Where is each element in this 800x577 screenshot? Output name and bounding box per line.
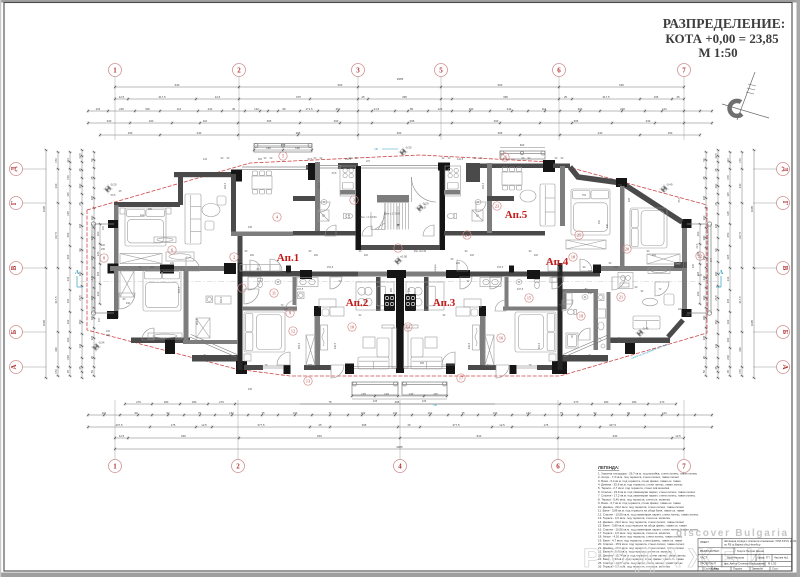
svg-text:25: 25 — [676, 95, 680, 99]
svg-text:330: 330 — [107, 119, 112, 123]
svg-text:1095: 1095 — [750, 205, 754, 212]
svg-text:200: 200 — [78, 183, 82, 188]
svg-text:Д: Д — [781, 167, 789, 172]
svg-text:фаза: ТП: фаза: ТП — [758, 556, 770, 560]
svg-text:21,5: 21,5 — [374, 107, 380, 111]
svg-text:270: 270 — [219, 400, 224, 404]
svg-text:101: 101 — [662, 411, 667, 415]
svg-text:А: А — [10, 364, 18, 369]
svg-text:12,5: 12,5 — [119, 95, 125, 99]
svg-text:150: 150 — [598, 219, 601, 224]
svg-text:8: 8 — [103, 256, 105, 261]
svg-text:133: 133 — [493, 411, 498, 415]
svg-text:365: 365 — [726, 254, 730, 259]
svg-text:365,5: 365,5 — [618, 336, 621, 343]
svg-text:6: 6 — [556, 463, 560, 471]
svg-text:229: 229 — [119, 107, 124, 111]
svg-text:-0,40: -0,40 — [666, 183, 673, 187]
svg-text:300: 300 — [578, 107, 583, 111]
svg-text:45: 45 — [66, 370, 70, 374]
svg-text:-0,24: -0,24 — [98, 341, 105, 345]
svg-text:328: 328 — [628, 197, 631, 202]
svg-text:20: 20 — [625, 247, 629, 252]
svg-text:365: 365 — [267, 119, 272, 123]
svg-text:240: 240 — [606, 223, 609, 228]
svg-text:Подпис: Подпис — [733, 567, 743, 571]
svg-text:270: 270 — [136, 400, 141, 404]
svg-text:176: 176 — [738, 158, 742, 163]
svg-text:762: 762 — [618, 184, 623, 187]
svg-text:131: 131 — [714, 343, 718, 348]
svg-text:240: 240 — [598, 131, 603, 135]
svg-text:115: 115 — [66, 298, 70, 303]
svg-text:810: 810 — [477, 434, 482, 438]
svg-text:16кл. х 17,5/30: 16кл. х 17,5/30 — [359, 216, 377, 219]
svg-text:242,5: 242,5 — [468, 342, 471, 349]
svg-text:Съст.: Съст. — [772, 567, 779, 571]
svg-text:опора: опора — [434, 264, 437, 272]
svg-text:50: 50 — [90, 370, 94, 374]
svg-text:Б: Б — [10, 329, 18, 334]
svg-text:317,5: 317,5 — [603, 95, 610, 99]
svg-text:95,5: 95,5 — [678, 197, 681, 202]
svg-text:11: 11 — [272, 291, 276, 296]
svg-text:-0,20: -0,20 — [110, 183, 117, 187]
svg-text:240: 240 — [126, 302, 131, 305]
svg-text:180: 180 — [604, 400, 609, 404]
svg-text:377,5: 377,5 — [453, 423, 460, 427]
svg-text:45: 45 — [78, 366, 82, 370]
svg-text:discover Bulgaria: discover Bulgaria — [676, 528, 789, 539]
svg-text:45: 45 — [714, 366, 718, 370]
svg-text:25: 25 — [577, 233, 581, 238]
svg-text:495: 495 — [395, 400, 400, 404]
svg-text:Д: Д — [10, 166, 18, 171]
svg-text:Георги Петров Жеков: Георги Петров Жеков — [737, 549, 764, 553]
svg-text:100: 100 — [678, 308, 683, 311]
svg-text:115: 115 — [98, 317, 101, 322]
svg-text:100: 100 — [106, 330, 111, 333]
svg-text:50,5: 50,5 — [111, 194, 116, 197]
svg-text:33,5: 33,5 — [332, 172, 337, 175]
svg-text:25: 25 — [702, 176, 706, 180]
svg-text:1Б: 1Б — [374, 147, 378, 151]
svg-text:180: 180 — [106, 334, 111, 337]
svg-text:365: 365 — [308, 364, 313, 367]
svg-text:Архитектурна: Архитектурна — [727, 556, 745, 560]
svg-text:101: 101 — [662, 107, 667, 111]
svg-text:100: 100 — [101, 244, 106, 247]
svg-text:362,5: 362,5 — [196, 318, 199, 325]
svg-text:600: 600 — [498, 83, 503, 87]
svg-text:197: 197 — [366, 160, 371, 163]
svg-text:240: 240 — [261, 272, 266, 275]
svg-text:75: 75 — [461, 411, 465, 415]
svg-text:-0,45: -0,45 — [642, 327, 649, 331]
svg-text:РАЗПРЕДЕЛЕНИЕ:: РАЗПРЕДЕЛЕНИЕ: — [663, 16, 786, 31]
svg-text:262,5: 262,5 — [298, 342, 301, 349]
svg-text:155: 155 — [654, 95, 659, 99]
svg-text:230: 230 — [588, 292, 593, 295]
svg-text:В: В — [10, 265, 18, 270]
svg-text:7: 7 — [682, 463, 686, 471]
svg-text:97,5: 97,5 — [424, 203, 427, 208]
svg-text:242: 242 — [208, 107, 213, 111]
svg-text:270: 270 — [660, 400, 665, 404]
svg-text:237,5: 237,5 — [297, 288, 304, 291]
svg-text:457: 457 — [710, 257, 713, 262]
svg-text:49: 49 — [232, 107, 236, 111]
svg-text:М 1:50: М 1:50 — [768, 562, 777, 566]
svg-text:100: 100 — [90, 215, 94, 220]
svg-text:365: 365 — [296, 131, 301, 135]
svg-text:42,5: 42,5 — [78, 153, 82, 159]
svg-text:350: 350 — [78, 319, 82, 324]
svg-text:15: 15 — [527, 296, 531, 301]
svg-text:2905: 2905 — [396, 445, 403, 449]
svg-text:437,5: 437,5 — [609, 423, 616, 427]
svg-text:810: 810 — [317, 434, 322, 438]
svg-text:270: 270 — [574, 400, 579, 404]
svg-text:240: 240 — [702, 275, 706, 280]
svg-text:Вид: Вид — [714, 567, 719, 571]
svg-text:115: 115 — [78, 223, 82, 228]
svg-text:75: 75 — [198, 411, 202, 415]
svg-text:302,5: 302,5 — [538, 342, 541, 349]
svg-text:317,5: 317,5 — [54, 232, 58, 239]
svg-text:4: 4 — [398, 463, 402, 471]
svg-text:200: 200 — [614, 266, 619, 269]
svg-text:176: 176 — [54, 158, 58, 163]
svg-text:190: 190 — [149, 119, 154, 123]
svg-text:А: А — [75, 270, 80, 276]
svg-text:200: 200 — [470, 254, 475, 257]
svg-text:133: 133 — [293, 411, 298, 415]
svg-text:395: 395 — [503, 95, 508, 99]
svg-text:260: 260 — [334, 119, 339, 123]
svg-text:12,5: 12,5 — [499, 423, 505, 427]
svg-text:242,5: 242,5 — [334, 342, 337, 349]
svg-text:122: 122 — [438, 107, 443, 111]
svg-text:1095: 1095 — [42, 319, 46, 326]
svg-text:Ап.1: Ап.1 — [277, 252, 300, 264]
svg-text:КОТА +0,00 = 23,85: КОТА +0,00 = 23,85 — [665, 31, 779, 46]
svg-text:330: 330 — [738, 183, 742, 188]
svg-text:133: 133 — [393, 411, 398, 415]
svg-text:300: 300 — [520, 143, 525, 147]
svg-text:113: 113 — [66, 158, 70, 163]
svg-text:3: 3 — [353, 198, 355, 203]
svg-text:245: 245 — [248, 226, 253, 229]
svg-text:75: 75 — [328, 400, 332, 404]
svg-text:180: 180 — [702, 315, 706, 320]
svg-text:17: 17 — [459, 376, 463, 381]
svg-text:Замерил: Замерил — [752, 567, 763, 571]
svg-text:75: 75 — [560, 411, 564, 415]
svg-text:630: 630 — [613, 434, 618, 438]
svg-text:162: 162 — [361, 411, 366, 415]
svg-text:90: 90 — [78, 248, 82, 252]
svg-text:630: 630 — [181, 434, 186, 438]
svg-text:200: 200 — [284, 308, 289, 311]
svg-text:180: 180 — [686, 314, 691, 317]
svg-text:16кл х 17,5/30: 16кл х 17,5/30 — [384, 212, 401, 215]
svg-text:115: 115 — [726, 298, 730, 303]
svg-text:12,5: 12,5 — [215, 95, 221, 99]
svg-text:120: 120 — [96, 251, 100, 256]
svg-text:242: 242 — [507, 107, 512, 111]
svg-text:25: 25 — [714, 168, 718, 172]
svg-text:162: 162 — [726, 319, 730, 324]
svg-text:Ап.4: Ап.4 — [546, 256, 569, 268]
svg-text:142,5: 142,5 — [345, 158, 352, 161]
svg-text:2бр.х10:40: 2бр.х10:40 — [414, 250, 427, 253]
svg-text:160: 160 — [469, 107, 474, 111]
svg-text:245: 245 — [348, 213, 351, 218]
svg-text:152,5: 152,5 — [497, 266, 504, 269]
svg-text:120: 120 — [384, 392, 389, 396]
svg-text:120: 120 — [696, 291, 700, 296]
svg-text:115: 115 — [714, 223, 718, 228]
svg-text:330: 330 — [54, 183, 58, 188]
svg-text:330: 330 — [646, 119, 651, 123]
svg-text:по РЗ гр.Варна общ.Несебър: по РЗ гр.Варна общ.Несебър — [724, 543, 761, 547]
svg-text:5: 5 — [282, 154, 284, 159]
svg-text:27,5: 27,5 — [714, 295, 718, 301]
svg-text:12: 12 — [291, 329, 295, 334]
svg-text:131: 131 — [726, 276, 730, 281]
svg-text:2: 2 — [236, 463, 240, 471]
svg-text:5: 5 — [439, 67, 443, 75]
svg-text:113: 113 — [726, 158, 730, 163]
svg-text:Ап.3: Ап.3 — [433, 297, 456, 309]
svg-text:42,5: 42,5 — [714, 153, 718, 159]
svg-text:313: 313 — [496, 166, 501, 169]
svg-text:365: 365 — [66, 254, 70, 259]
svg-text:97,5: 97,5 — [308, 158, 313, 161]
svg-text:Ап.5: Ап.5 — [505, 209, 528, 221]
svg-text:600: 600 — [338, 83, 343, 87]
svg-text:25: 25 — [78, 202, 82, 206]
svg-text:12,5: 12,5 — [675, 434, 681, 438]
svg-text:675: 675 — [296, 95, 301, 99]
svg-text:+0,00: +0,00 — [400, 255, 408, 259]
svg-text:50: 50 — [90, 158, 94, 162]
svg-text:18: 18 — [571, 255, 575, 260]
svg-text:171,5: 171,5 — [306, 107, 313, 111]
svg-text:175: 175 — [544, 423, 549, 427]
svg-text:122: 122 — [254, 107, 259, 111]
svg-text:100: 100 — [696, 231, 700, 236]
svg-text:114: 114 — [542, 107, 547, 111]
svg-text:101: 101 — [96, 107, 101, 111]
svg-text:23: 23 — [495, 204, 499, 209]
svg-text:3: 3 — [356, 67, 360, 75]
svg-text:162: 162 — [66, 319, 70, 324]
svg-text:162: 162 — [229, 411, 234, 415]
svg-text:200: 200 — [714, 183, 718, 188]
svg-text:237,5: 237,5 — [517, 288, 524, 291]
svg-text:350: 350 — [66, 232, 70, 237]
svg-text:485: 485 — [390, 287, 393, 292]
svg-text:13: 13 — [306, 379, 310, 384]
svg-text:260: 260 — [494, 119, 499, 123]
svg-text:317,5: 317,5 — [738, 232, 742, 239]
svg-text:175: 175 — [171, 423, 176, 427]
svg-text:395: 395 — [410, 119, 415, 123]
svg-text:115: 115 — [433, 392, 438, 396]
svg-text:180: 180 — [101, 248, 106, 251]
svg-text:218: 218 — [726, 355, 730, 360]
svg-text:115: 115 — [726, 192, 730, 197]
svg-text:25: 25 — [318, 423, 322, 427]
svg-text:100: 100 — [66, 337, 70, 342]
svg-text:435: 435 — [692, 263, 695, 268]
svg-text:300: 300 — [258, 158, 263, 161]
svg-text:1а2: 1а2 — [140, 214, 145, 217]
svg-text:25: 25 — [78, 168, 82, 172]
svg-text:180: 180 — [192, 400, 197, 404]
svg-text:89: 89 — [410, 107, 414, 111]
svg-text:101: 101 — [102, 411, 107, 415]
svg-text:120: 120 — [696, 251, 700, 256]
svg-text:365: 365 — [420, 362, 425, 365]
svg-text:1095: 1095 — [750, 319, 754, 326]
svg-text:-0,30: -0,30 — [405, 146, 412, 150]
svg-text:110: 110 — [203, 119, 208, 123]
svg-text:Ап.2: Ап.2 — [346, 297, 369, 309]
svg-text:99: 99 — [134, 411, 138, 415]
svg-text:21: 21 — [619, 295, 623, 300]
svg-text:317,5: 317,5 — [54, 296, 58, 303]
svg-text:365: 365 — [498, 131, 503, 135]
svg-text:100: 100 — [702, 215, 706, 220]
svg-text:А: А — [719, 270, 724, 276]
svg-text:В: В — [781, 266, 789, 271]
svg-text:77: 77 — [328, 411, 332, 415]
svg-text:115: 115 — [90, 335, 94, 340]
svg-text:6: 6 — [557, 67, 561, 75]
svg-text:2: 2 — [233, 255, 235, 260]
svg-text:92: 92 — [593, 411, 597, 415]
svg-text:162,5: 162,5 — [482, 182, 485, 189]
svg-text:ПРОЕКТАНТ: ПРОЕКТАНТ — [700, 562, 716, 566]
svg-text:100: 100 — [726, 337, 730, 342]
svg-text:100: 100 — [96, 231, 100, 236]
svg-text:130: 130 — [409, 392, 414, 396]
svg-text:245: 245 — [422, 399, 427, 403]
svg-text:200: 200 — [534, 254, 539, 257]
svg-text:142: 142 — [203, 158, 208, 161]
svg-text:12,5: 12,5 — [119, 434, 125, 438]
svg-text:150: 150 — [266, 146, 271, 150]
svg-text:100: 100 — [714, 271, 718, 276]
svg-text:252: 252 — [336, 107, 341, 111]
svg-text:ВЪЗЛОЖИТЕЛ:: ВЪЗЛОЖИТЕЛ: — [700, 549, 720, 553]
svg-text:М 1:50: М 1:50 — [698, 45, 737, 60]
svg-text:302,5: 302,5 — [220, 296, 223, 303]
svg-text:200: 200 — [250, 254, 255, 257]
svg-text:200: 200 — [652, 254, 657, 257]
svg-text:330: 330 — [54, 347, 58, 352]
svg-text:131: 131 — [66, 276, 70, 281]
svg-text:317,5: 317,5 — [738, 296, 742, 303]
svg-text:115: 115 — [102, 225, 105, 230]
svg-text:630: 630 — [619, 83, 624, 87]
svg-text:200: 200 — [562, 308, 567, 311]
svg-text:75: 75 — [261, 411, 265, 415]
svg-text:25: 25 — [361, 95, 365, 99]
svg-text:115: 115 — [90, 195, 94, 200]
svg-text:25: 25 — [90, 356, 94, 360]
svg-text:330: 330 — [738, 347, 742, 352]
svg-text:762: 762 — [582, 194, 587, 197]
svg-text:25: 25 — [564, 95, 568, 99]
svg-text:10: 10 — [350, 325, 354, 330]
svg-text:125: 125 — [361, 392, 366, 396]
svg-text:6: 6 — [171, 248, 173, 253]
svg-text:Г: Г — [781, 201, 789, 206]
svg-text:170: 170 — [66, 175, 70, 180]
svg-text:115: 115 — [66, 192, 70, 197]
svg-text:Чертеж №1: Чертеж №1 — [774, 556, 789, 560]
svg-text:27,5: 27,5 — [78, 295, 82, 301]
svg-text:176: 176 — [738, 369, 742, 374]
svg-text:12,5: 12,5 — [201, 423, 207, 427]
svg-text:180: 180 — [632, 400, 637, 404]
svg-text:арх. Антон Стоянов Бакърджиев: арх. Антон Стоянов Бакърджиев — [724, 562, 765, 566]
svg-text:Г: Г — [10, 200, 18, 205]
svg-text:1095: 1095 — [42, 205, 46, 212]
svg-text:120: 120 — [170, 262, 175, 265]
svg-text:260: 260 — [397, 131, 402, 135]
svg-text:200: 200 — [588, 270, 593, 273]
svg-text:А: А — [781, 364, 789, 369]
svg-text:317,5: 317,5 — [159, 95, 166, 99]
svg-text:1: 1 — [397, 246, 399, 251]
svg-text:115: 115 — [702, 335, 706, 340]
svg-text:162: 162 — [526, 411, 531, 415]
svg-text:25: 25 — [90, 176, 94, 180]
svg-text:150: 150 — [668, 131, 673, 135]
svg-text:90: 90 — [714, 248, 718, 252]
svg-text:245: 245 — [248, 388, 253, 391]
svg-text:99: 99 — [627, 411, 631, 415]
svg-text:395: 395 — [362, 423, 367, 427]
svg-text:162,5: 162,5 — [318, 182, 321, 189]
svg-text:2965: 2965 — [397, 77, 404, 81]
svg-text:630: 630 — [175, 83, 180, 87]
svg-text:180: 180 — [702, 235, 706, 240]
svg-text:89: 89 — [282, 107, 286, 111]
svg-text:365: 365 — [574, 119, 579, 123]
svg-text:131: 131 — [78, 343, 82, 348]
svg-text:180: 180 — [90, 315, 94, 320]
svg-text:7: 7 — [682, 67, 686, 75]
svg-text:150: 150 — [128, 131, 133, 135]
svg-text:162,5: 162,5 — [224, 182, 227, 189]
svg-text:200: 200 — [314, 254, 319, 257]
svg-text:300: 300 — [145, 107, 150, 111]
svg-text:115: 115 — [96, 271, 100, 276]
svg-text:240: 240 — [197, 131, 202, 135]
svg-text:115: 115 — [702, 195, 706, 200]
svg-text:180: 180 — [148, 208, 153, 211]
svg-text:350: 350 — [726, 232, 730, 237]
svg-text:377,5: 377,5 — [258, 423, 265, 427]
svg-text:26: 26 — [503, 155, 507, 160]
svg-text:92: 92 — [166, 411, 170, 415]
